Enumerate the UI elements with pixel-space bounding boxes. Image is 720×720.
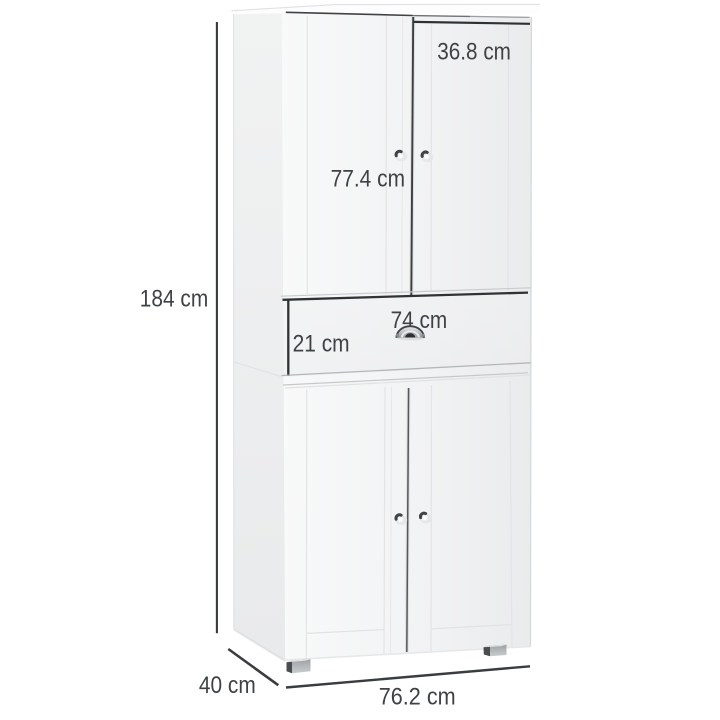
svg-text:77.4 cm: 77.4 cm [331, 166, 405, 193]
svg-text:76.2 cm: 76.2 cm [379, 683, 456, 710]
svg-text:21 cm: 21 cm [293, 331, 350, 358]
svg-text:40 cm: 40 cm [199, 672, 256, 699]
svg-text:36.8 cm: 36.8 cm [437, 38, 511, 65]
svg-text:184 cm: 184 cm [140, 286, 208, 313]
